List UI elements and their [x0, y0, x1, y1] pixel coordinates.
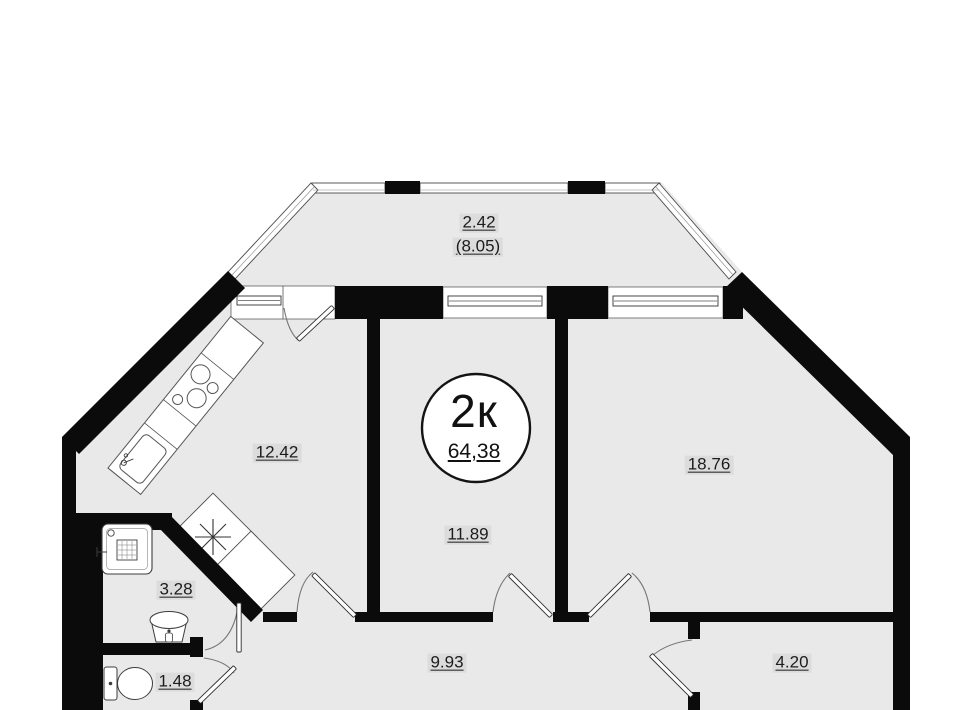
floor-plan: 2.42 (8.05) 12.42 11.89 18.76 9.93 3.28 … [0, 0, 960, 710]
room-right-area-label: 18.76 [685, 456, 734, 475]
apartment-type-badge: 2к [450, 384, 498, 438]
apartment-total-area-badge: 64,38 [448, 440, 501, 464]
kitchen-window-icon [237, 296, 281, 305]
hallway-area-label: 9.93 [427, 654, 466, 673]
washbasin-icon [150, 612, 188, 643]
shower-icon [97, 524, 152, 574]
room-mid-window-icon [443, 287, 547, 318]
storage-area-label: 4.20 [772, 654, 811, 673]
balcony-area-label: 2.42 [459, 214, 498, 233]
toilet-icon [104, 667, 153, 700]
balcony-area-total-label: (8.05) [453, 238, 503, 257]
kitchen-area-label: 12.42 [253, 444, 302, 463]
wc-area-label: 1.48 [155, 673, 194, 692]
bathroom-area-label: 3.28 [156, 581, 195, 600]
floor-plan-drawing [0, 0, 960, 710]
room-right-window-icon [608, 287, 723, 318]
kitchen-window-and-balcony-door-band [231, 286, 335, 319]
room-mid-area-label: 11.89 [444, 526, 491, 545]
